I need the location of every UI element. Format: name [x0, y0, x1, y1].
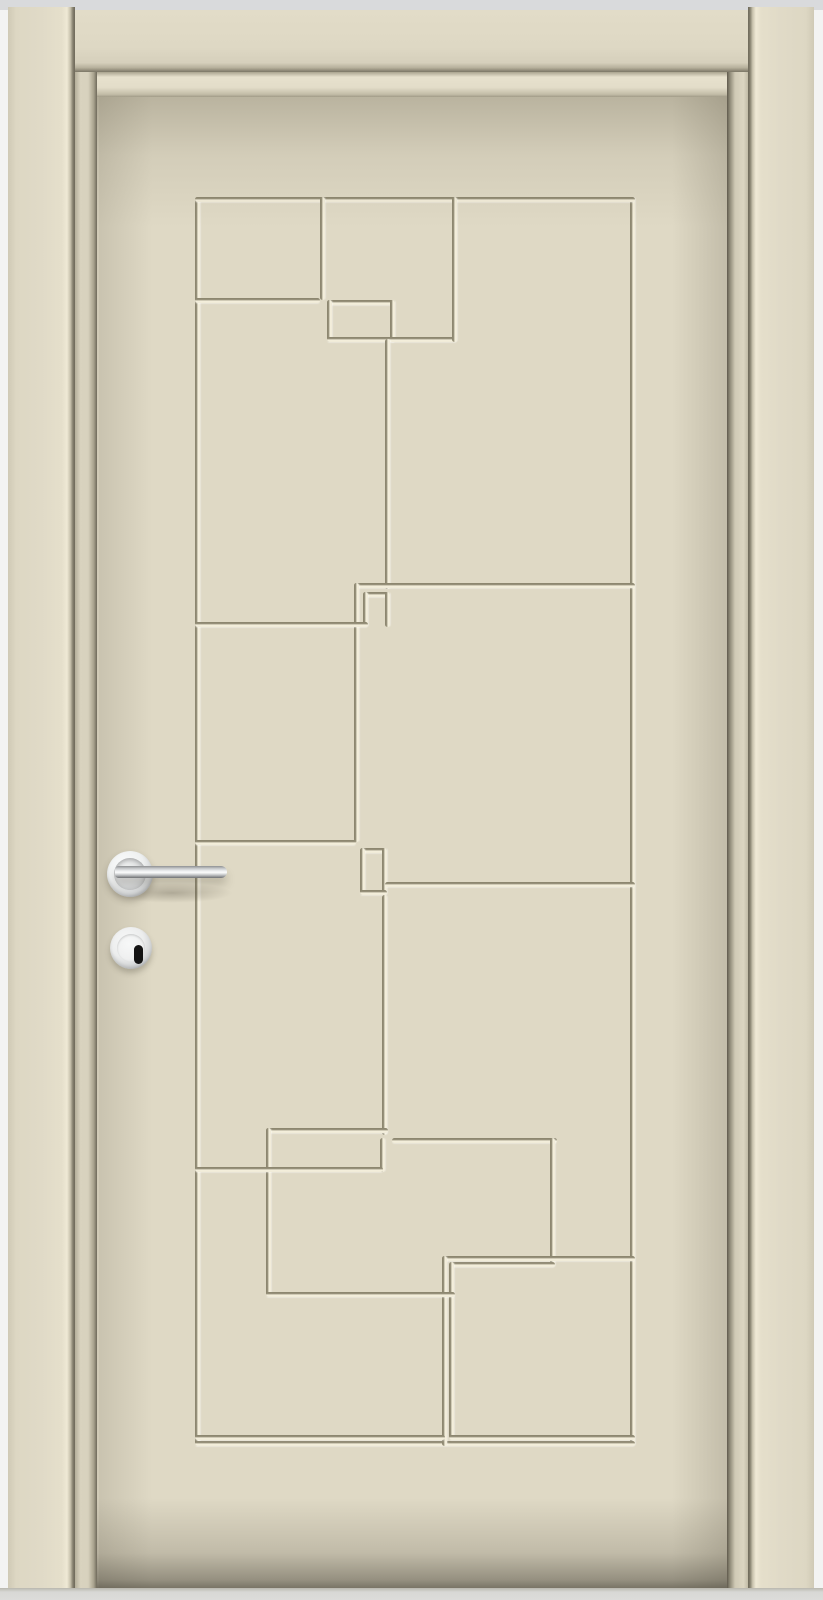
door-leaf	[97, 97, 727, 1588]
groove-segment-outer-bottom	[195, 1441, 635, 1446]
groove-segment-box2-right	[385, 592, 390, 627]
groove-segment-center-vert-1	[385, 339, 390, 589]
groove-segment-bottomright-cell-top	[442, 1256, 635, 1261]
groove-segment-widebox-top-left	[266, 1128, 388, 1133]
door-jamb-reveal-right	[727, 72, 748, 1590]
groove-segment-mid-right-bottom	[385, 882, 635, 887]
groove-pattern	[97, 97, 727, 1588]
groove-segment-widebox-left	[266, 1128, 271, 1297]
groove-segment-widebox-bottom	[266, 1292, 455, 1297]
groove-segment-left-cell-divider-2	[195, 840, 356, 845]
groove-segment-topleft-cell-bottom	[195, 298, 320, 303]
groove-segment-box1-right	[390, 300, 395, 342]
groove-segment-box1-left	[327, 300, 332, 342]
groove-segment-center-vert-3	[382, 895, 387, 1135]
door-photo	[0, 0, 823, 1600]
groove-segment-box1-top	[327, 300, 395, 305]
groove-segment-bottom-divider-a	[442, 1256, 447, 1446]
door-jamb-reveal-left	[75, 72, 97, 1590]
lever-handle	[115, 866, 227, 878]
groove-segment-bottomright-cell-bottom	[449, 1435, 635, 1440]
groove-segment-left-cell-divider-3	[195, 1167, 383, 1172]
groove-segment-outer-top	[195, 197, 635, 202]
floor-strip	[0, 1588, 823, 1600]
groove-segment-box3-left	[360, 848, 365, 895]
groove-segment-outer-left	[195, 197, 200, 1446]
door-jamb-reveal-top	[75, 72, 748, 100]
groove-segment-left-cell-divider-1	[195, 622, 368, 627]
wall-strip	[0, 0, 823, 10]
door-frame-head-casing	[75, 10, 748, 72]
door-frame-casing-left	[8, 7, 75, 1590]
groove-segment-widebox-top-right	[392, 1138, 557, 1143]
escutcheon-inner-disc	[117, 934, 145, 962]
groove-segment-bottomleft-cell-bottom	[195, 1435, 445, 1440]
groove-segment-widebox-right	[550, 1138, 555, 1267]
groove-segment-top-divider-1	[320, 197, 325, 300]
groove-segment-top-divider-2	[452, 197, 457, 342]
groove-segment-box1-connector	[390, 337, 457, 342]
keyhole	[134, 945, 143, 964]
groove-segment-widebox-bottom-inner	[450, 1262, 555, 1267]
groove-segment-mid-right-top	[354, 583, 635, 588]
door-frame-casing-right	[748, 7, 814, 1590]
groove-segment-box3-right	[382, 848, 387, 895]
keyhole-escutcheon	[110, 927, 152, 969]
groove-segment-bottom-divider-b	[449, 1262, 454, 1440]
